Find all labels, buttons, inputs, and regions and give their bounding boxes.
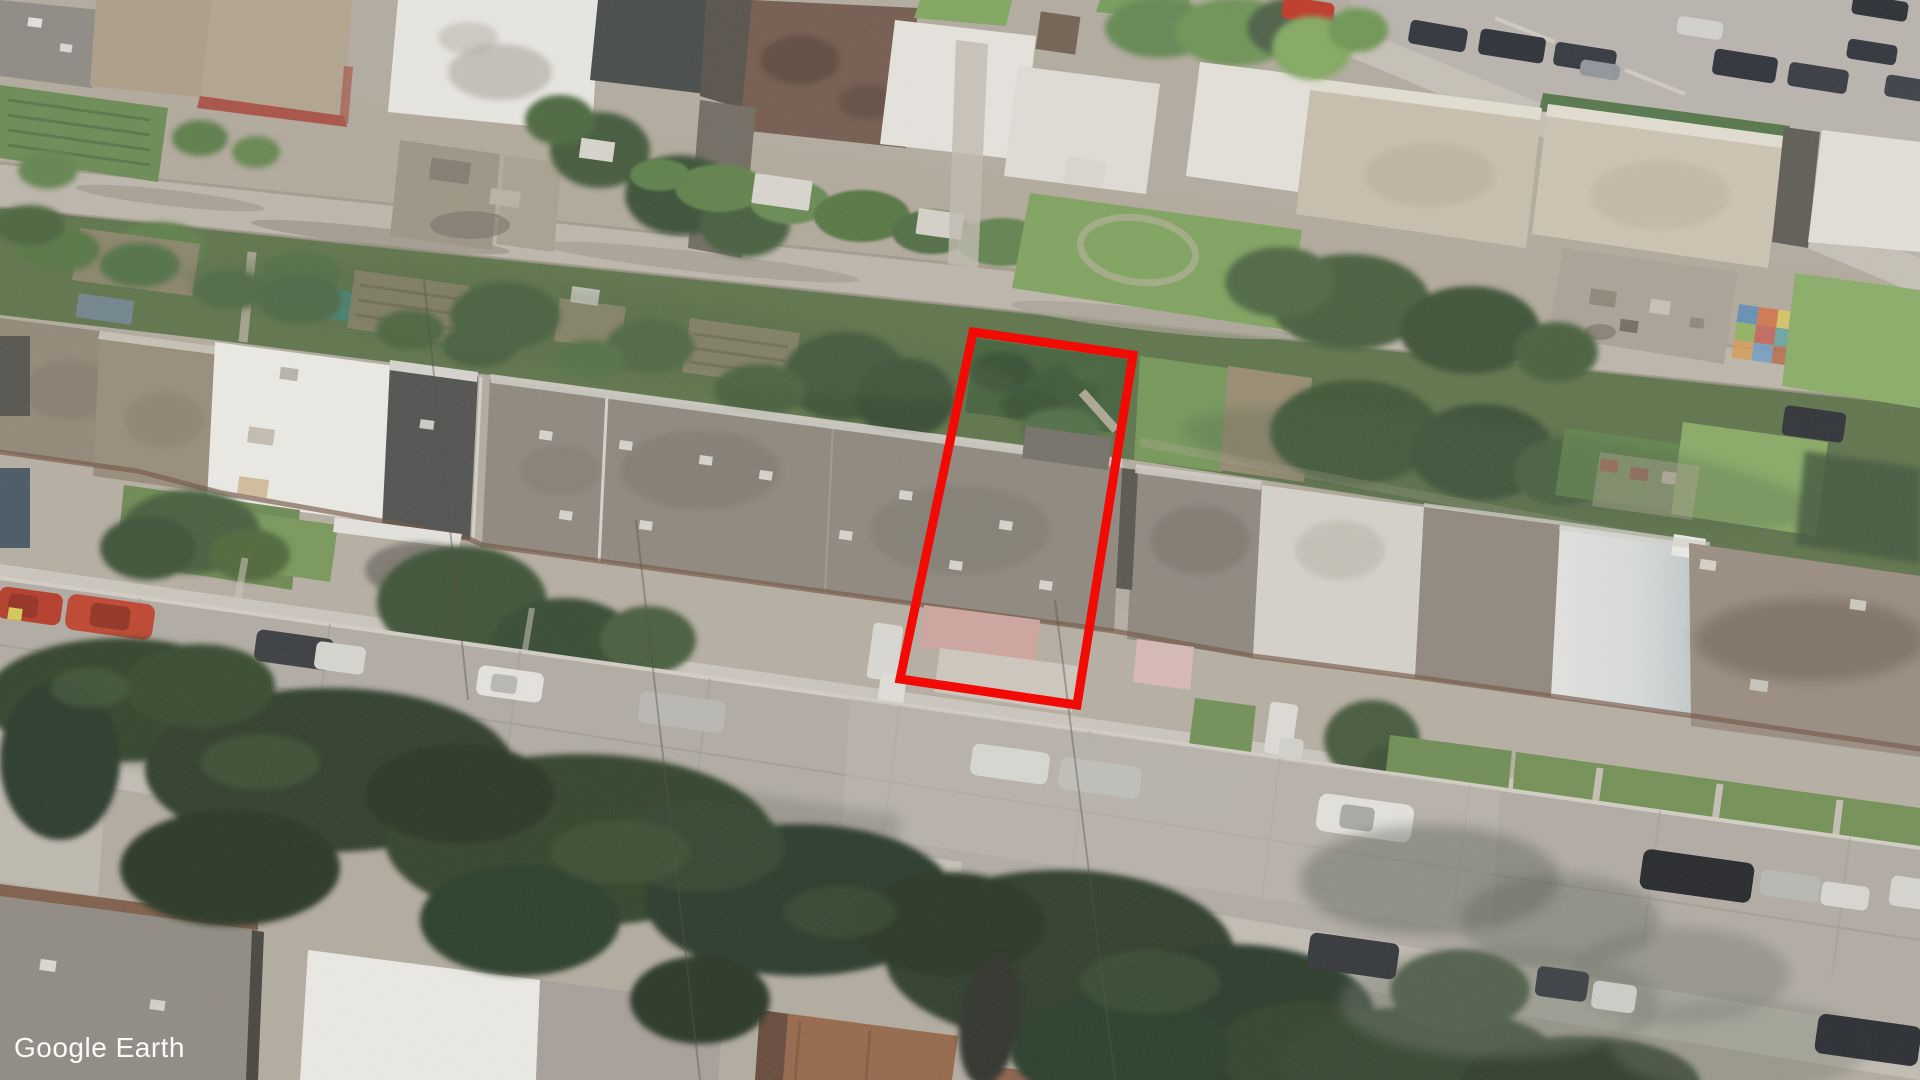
svg-text:Google Earth: Google Earth (14, 1032, 185, 1063)
